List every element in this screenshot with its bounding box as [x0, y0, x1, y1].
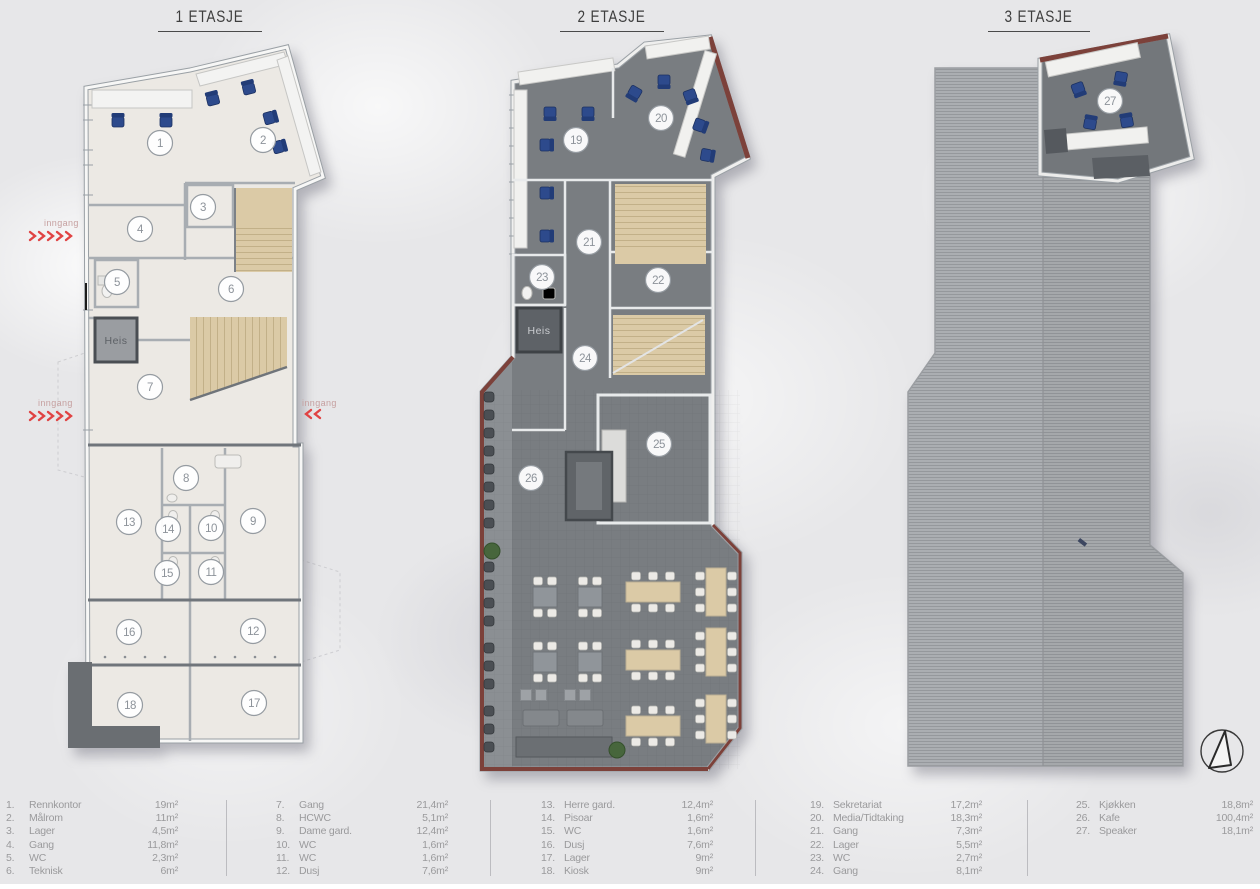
legend-row: 22.Lager5,5m² — [810, 839, 982, 852]
legend-larea: 2,7m² — [956, 852, 982, 865]
legend-larea: 4,5m² — [152, 825, 178, 838]
cafe-chair — [593, 642, 602, 650]
cafe-chair — [632, 672, 641, 680]
cafe-chair — [666, 738, 675, 746]
legend-lname: Herre gard. — [564, 799, 682, 812]
cafe-chair — [534, 609, 543, 617]
legend-lname: Media/Tidtaking — [833, 812, 951, 825]
plant — [609, 742, 625, 758]
cafe-chair — [728, 699, 737, 707]
cafe-table-square — [578, 587, 602, 607]
bar-stool — [484, 679, 494, 689]
legend-row: 10.WC1,6m² — [276, 839, 448, 852]
legend-larea: 6m² — [161, 865, 178, 878]
legend-larea: 9m² — [696, 865, 713, 878]
legend-divider — [1027, 800, 1028, 876]
cafe-table-long — [626, 650, 680, 670]
legend-lname: Speaker — [1099, 825, 1222, 838]
legend-lname: HCWC — [299, 812, 422, 825]
legend-column-3: 13.Herre gard.12,4m²14.Pisoar1,6m²15.WC1… — [541, 799, 713, 878]
legend-lname: Lager — [29, 825, 152, 838]
room-marker-number: 12 — [247, 626, 259, 638]
legend-divider — [490, 800, 491, 876]
room-marker-number: 11 — [206, 567, 217, 579]
legend-lnum: 17. — [541, 852, 564, 865]
cafe-table-long — [626, 582, 680, 602]
legend-row: 11.WC1,6m² — [276, 852, 448, 865]
legend-larea: 11m² — [156, 812, 178, 825]
floor1-title: 1 ETASJE — [158, 7, 262, 32]
entrance-arrow-icon — [66, 232, 71, 240]
office-chair — [1083, 114, 1098, 130]
legend-lname: Rennkontor — [29, 799, 155, 812]
bar-stool — [484, 724, 494, 734]
cafe-table-long — [706, 568, 726, 616]
legend-row: 18.Kiosk9m² — [541, 865, 713, 878]
legend-lnum: 22. — [810, 839, 833, 852]
legend-larea: 100,4m² — [1216, 812, 1253, 825]
legend-lnum: 6. — [6, 865, 29, 878]
floor-plans-svg: Heis 123456789101112131415161718 — [0, 0, 1260, 884]
room-marker-number: 21 — [583, 237, 595, 249]
cafe-chair — [649, 738, 658, 746]
legend-divider — [755, 800, 756, 876]
room-marker-number: 19 — [570, 135, 582, 147]
legend-lnum: 5. — [6, 852, 29, 865]
room-marker-number: 14 — [162, 524, 175, 536]
cafe-chair — [593, 674, 602, 682]
legend-lnum: 26. — [1076, 812, 1099, 825]
legend-row: 13.Herre gard.12,4m² — [541, 799, 713, 812]
cafe-chair — [548, 577, 557, 585]
cafe-chair — [579, 609, 588, 617]
cafe-chair — [534, 642, 543, 650]
cafe-chair — [696, 699, 705, 707]
legend-lnum: 3. — [6, 825, 29, 838]
legend-larea: 7,6m² — [422, 865, 448, 878]
legend-row: 14.Pisoar1,6m² — [541, 812, 713, 825]
wc23-toilet — [522, 287, 532, 300]
cafe-chair — [649, 672, 658, 680]
room-marker-number: 24 — [579, 353, 592, 365]
cafe-chair — [593, 577, 602, 585]
bar-stool — [484, 742, 494, 752]
legend-lnum: 8. — [276, 812, 299, 825]
cafe-chair — [548, 642, 557, 650]
sofa — [523, 710, 559, 726]
cafe-chair — [728, 572, 737, 580]
legend-row: 7.Gang21,4m² — [276, 799, 448, 812]
lounge-stool — [536, 690, 547, 701]
floor-1-plan: Heis 123456789101112131415161718 — [68, 47, 323, 748]
bar-stool — [484, 410, 494, 420]
cafe-chair — [696, 604, 705, 612]
bar-stool — [484, 643, 494, 653]
cafe-table-square — [533, 587, 557, 607]
bar-stool — [484, 464, 494, 474]
legend-lnum: 14. — [541, 812, 564, 825]
cafe-chair — [728, 648, 737, 656]
bar-stool — [484, 598, 494, 608]
legend-larea: 8,1m² — [956, 865, 982, 878]
legend-larea: 21,4m² — [417, 799, 448, 812]
bar-stool — [484, 562, 494, 572]
entrance-label-right: inngang — [302, 398, 337, 408]
entrance-arrow-icon — [48, 412, 53, 420]
entrance-arrow-icon — [48, 232, 53, 240]
cafe-chair — [696, 588, 705, 596]
cafe-chair — [593, 609, 602, 617]
legend-lnum: 27. — [1076, 825, 1099, 838]
bar-stool — [484, 446, 494, 456]
bar-stool — [484, 482, 494, 492]
bar-stool — [484, 392, 494, 402]
legend-lnum: 4. — [6, 839, 29, 852]
office-chair — [540, 230, 554, 243]
room-marker-number: 22 — [652, 275, 664, 287]
legend-column-5: 25.Kjøkken18,8m²26.Kafe100,4m²27.Speaker… — [1076, 799, 1253, 839]
floor3-stair-access — [1092, 155, 1150, 179]
legend-larea: 1,6m² — [422, 839, 448, 852]
room-marker-number: 23 — [536, 272, 548, 284]
bar-stool — [484, 500, 494, 510]
legend-row: 17.Lager9m² — [541, 852, 713, 865]
entrance-arrow-icon — [57, 232, 62, 240]
legend-larea: 5,5m² — [956, 839, 982, 852]
cafe-chair — [579, 577, 588, 585]
room-marker-number: 18 — [124, 700, 136, 712]
legend-lname: Kiosk — [564, 865, 696, 878]
legend-lnum: 2. — [6, 812, 29, 825]
room-marker-number: 5 — [114, 277, 120, 289]
legend-lnum: 18. — [541, 865, 564, 878]
lounge-stool — [580, 690, 591, 701]
legend-lname: Teknisk — [29, 865, 161, 878]
entrance-label-left: inngang — [38, 398, 73, 408]
bar-stool — [484, 706, 494, 716]
room-marker-number: 17 — [248, 698, 260, 710]
bar-stool — [484, 518, 494, 528]
cafe-table-square — [533, 652, 557, 672]
office-chair — [658, 75, 671, 89]
legend-lnum: 11. — [276, 852, 299, 865]
room-marker-number: 27 — [1104, 96, 1116, 108]
legend-lname: Dusj — [299, 865, 422, 878]
entrance-arrow-icon — [30, 232, 35, 240]
cafe-chair — [666, 672, 675, 680]
cafe-chair — [728, 731, 737, 739]
legend-lname: WC — [833, 852, 956, 865]
legend-lnum: 10. — [276, 839, 299, 852]
legend-larea: 2,3m² — [152, 852, 178, 865]
bar-stool — [484, 661, 494, 671]
legend-column-1: 1.Rennkontor19m²2.Målrom11m²3.Lager4,5m²… — [6, 799, 178, 878]
legend-lname: Gang — [299, 799, 417, 812]
entrance-arrow-icon — [66, 412, 71, 420]
legend-row: 3.Lager4,5m² — [6, 825, 178, 838]
entrance-arrow-icon — [306, 410, 311, 418]
legend-lnum: 1. — [6, 799, 29, 812]
legend-larea: 18,8m² — [1222, 799, 1253, 812]
legend-row: 25.Kjøkken18,8m² — [1076, 799, 1253, 812]
legend-column-4: 19.Sekretariat17,2m²20.Media/Tidtaking18… — [810, 799, 982, 878]
room-marker-number: 16 — [123, 627, 135, 639]
cafe-table-long — [626, 716, 680, 736]
bar-stool — [484, 616, 494, 626]
legend-row: 8.HCWC5,1m² — [276, 812, 448, 825]
room-marker-number: 2 — [260, 135, 266, 147]
legend-lname: Dusj — [564, 839, 687, 852]
legend-lnum: 7. — [276, 799, 299, 812]
cafe-chair — [666, 706, 675, 714]
office-chair — [544, 107, 557, 121]
legend-lname: Lager — [564, 852, 696, 865]
room-marker-number: 8 — [183, 473, 189, 485]
legend-lnum: 16. — [541, 839, 564, 852]
legend-lname: WC — [299, 852, 422, 865]
room-marker-number: 15 — [161, 568, 173, 580]
room-marker-number: 6 — [228, 284, 234, 296]
legend-row: 21.Gang7,3m² — [810, 825, 982, 838]
legend-lname: Gang — [833, 865, 956, 878]
office-chair — [582, 107, 595, 121]
cafe-table-square — [578, 652, 602, 672]
cafe-chair — [696, 715, 705, 723]
legend-lname: WC — [29, 852, 152, 865]
legend-larea: 11,8m² — [147, 839, 178, 852]
cafe-chair — [548, 609, 557, 617]
legend-lname: Lager — [833, 839, 956, 852]
legend-lnum: 21. — [810, 825, 833, 838]
plant — [484, 543, 500, 559]
legend-lname: Dame gard. — [299, 825, 417, 838]
legend-lnum: 19. — [810, 799, 833, 812]
entrance-arrow-icon — [39, 232, 44, 240]
legend-lname: Pisoar — [564, 812, 687, 825]
cafe-chair — [728, 632, 737, 640]
entrance-arrow-icon — [39, 412, 44, 420]
entrance-arrow-icon — [315, 410, 320, 418]
legend-lnum: 15. — [541, 825, 564, 838]
room-marker-number: 26 — [525, 473, 537, 485]
cafe-chair — [696, 648, 705, 656]
cafe-chair — [632, 604, 641, 612]
office-chair — [112, 113, 125, 127]
legend-larea: 5,1m² — [422, 812, 448, 825]
cafe-chair — [632, 738, 641, 746]
cafe-table-long — [706, 628, 726, 676]
office-chair — [540, 187, 554, 200]
plan-sheet: 1 ETASJE 2 ETASJE 3 ETASJE — [0, 0, 1260, 884]
cafe-chair — [649, 640, 658, 648]
legend-larea: 12,4m² — [417, 825, 448, 838]
legend-lnum: 13. — [541, 799, 564, 812]
cafe-chair — [649, 572, 658, 580]
lounge-stool — [565, 690, 576, 701]
legend-lname: WC — [564, 825, 687, 838]
legend-row: 6.Teknisk6m² — [6, 865, 178, 878]
legend-larea: 1,6m² — [687, 825, 713, 838]
legend-larea: 1,6m² — [422, 852, 448, 865]
room-marker-number: 9 — [250, 516, 256, 528]
cafe-chair — [534, 577, 543, 585]
legend-row: 26.Kafe100,4m² — [1076, 812, 1253, 825]
legend-lnum: 25. — [1076, 799, 1099, 812]
legend-larea: 12,4m² — [682, 799, 713, 812]
office-chair — [160, 113, 173, 127]
office-chair — [540, 139, 554, 152]
floor-3-plan: 27 — [908, 36, 1192, 766]
floor3-room-markers: 27 — [1098, 89, 1123, 114]
cafe-chair — [728, 715, 737, 723]
counter — [516, 737, 612, 757]
legend-larea: 7,3m² — [956, 825, 982, 838]
legend-divider — [226, 800, 227, 876]
cafe-chair — [666, 640, 675, 648]
north-arrow-icon — [1201, 730, 1243, 772]
cafe-chair — [696, 572, 705, 580]
cafe-chair — [696, 731, 705, 739]
legend-lname: Gang — [833, 825, 956, 838]
legend-lnum: 9. — [276, 825, 299, 838]
legend-row: 19.Sekretariat17,2m² — [810, 799, 982, 812]
legend-larea: 18,1m² — [1222, 825, 1253, 838]
elevator-label-floor2: Heis — [527, 325, 550, 337]
cafe-chair — [548, 674, 557, 682]
bar-stool — [484, 580, 494, 590]
floor-2-plan: Heis 1920212223242526 — [482, 36, 748, 769]
room-marker-number: 13 — [123, 517, 135, 529]
legend-row: 9.Dame gard.12,4m² — [276, 825, 448, 838]
legend-row: 4.Gang11,8m² — [6, 839, 178, 852]
cafe-chair — [649, 604, 658, 612]
entrance-arrow-icon — [30, 412, 35, 420]
legend-lnum: 23. — [810, 852, 833, 865]
legend-lnum: 24. — [810, 865, 833, 878]
office-chair — [1113, 71, 1128, 87]
legend-lnum: 20. — [810, 812, 833, 825]
cafe-table-long — [706, 695, 726, 743]
cafe-chair — [728, 664, 737, 672]
cafe-chair — [632, 572, 641, 580]
legend-column-2: 7.Gang21,4m²8.HCWC5,1m²9.Dame gard.12,4m… — [276, 799, 448, 878]
legend-row: 27.Speaker18,1m² — [1076, 825, 1253, 838]
legend-lnum: 12. — [276, 865, 299, 878]
cafe-chair — [666, 604, 675, 612]
legend-row: 20.Media/Tidtaking18,3m² — [810, 812, 982, 825]
legend-row: 23.WC2,7m² — [810, 852, 982, 865]
legend-larea: 7,6m² — [687, 839, 713, 852]
legend-row: 15.WC1,6m² — [541, 825, 713, 838]
legend-larea: 9m² — [696, 852, 713, 865]
cafe-chair — [649, 706, 658, 714]
room-marker-number: 3 — [200, 202, 206, 214]
legend-larea: 19m² — [155, 799, 178, 812]
legend-larea: 1,6m² — [687, 812, 713, 825]
legend-lname: Gang — [29, 839, 147, 852]
legend-larea: 17,2m² — [951, 799, 982, 812]
floor2-title: 2 ETASJE — [560, 7, 664, 32]
cafe-chair — [579, 642, 588, 650]
office-chair — [1119, 112, 1134, 128]
elevator-label-floor1: Heis — [104, 335, 127, 347]
cafe-chair — [632, 706, 641, 714]
legend-lname: WC — [299, 839, 422, 852]
cafe-chair — [534, 674, 543, 682]
bar-stool — [484, 428, 494, 438]
legend-lname: Kafe — [1099, 812, 1216, 825]
office-chair — [700, 148, 716, 163]
cafe-chair — [579, 674, 588, 682]
legend-row: 12.Dusj7,6m² — [276, 865, 448, 878]
room-marker-number: 20 — [655, 113, 667, 125]
room-marker-number: 25 — [653, 439, 665, 451]
cafe-chair — [728, 588, 737, 596]
cabinet — [1044, 128, 1068, 154]
room-marker-number: 1 — [157, 138, 163, 150]
sofa — [567, 710, 603, 726]
room-marker-number: 10 — [205, 523, 217, 535]
entrance-label-top: inngang — [44, 218, 79, 228]
legend-lname: Sekretariat — [833, 799, 951, 812]
legend-row: 1.Rennkontor19m² — [6, 799, 178, 812]
lounge-stool — [521, 690, 532, 701]
legend-row: 16.Dusj7,6m² — [541, 839, 713, 852]
cafe-chair — [666, 572, 675, 580]
legend-larea: 18,3m² — [951, 812, 982, 825]
cafe-chair — [728, 604, 737, 612]
legend-row: 5.WC2,3m² — [6, 852, 178, 865]
cafe-chair — [696, 632, 705, 640]
cafe-chair — [632, 640, 641, 648]
legend-row: 24.Gang8,1m² — [810, 865, 982, 878]
legend-lname: Målrom — [29, 812, 156, 825]
legend-row: 2.Målrom11m² — [6, 812, 178, 825]
cafe-chair — [696, 664, 705, 672]
legend-lname: Kjøkken — [1099, 799, 1222, 812]
room-marker-number: 7 — [147, 382, 153, 394]
room-legend: 1.Rennkontor19m²2.Målrom11m²3.Lager4,5m²… — [0, 797, 1260, 881]
floor3-title: 3 ETASJE — [988, 7, 1090, 32]
